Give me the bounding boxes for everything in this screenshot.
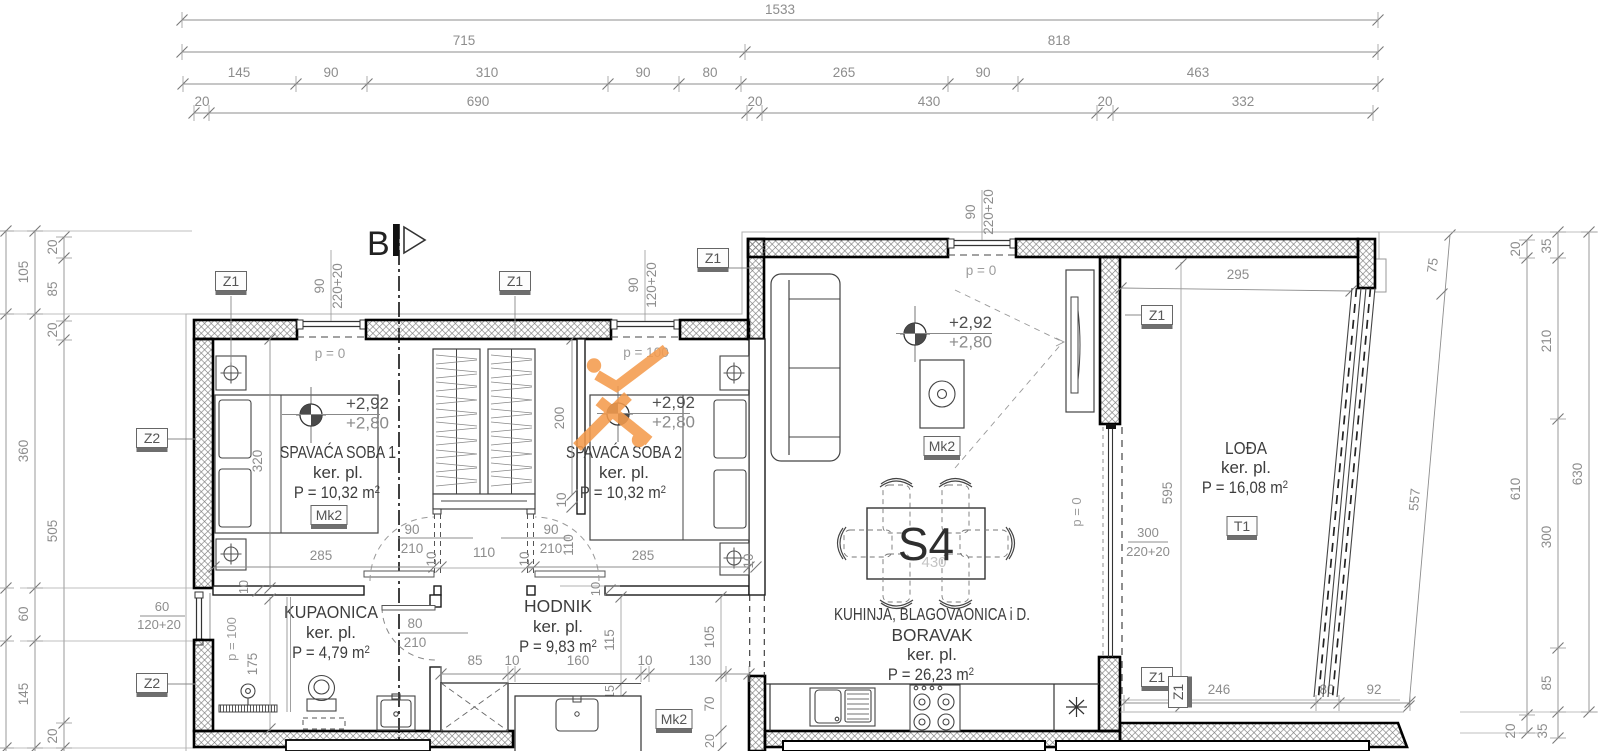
svg-text:220+20: 220+20 (330, 263, 345, 308)
svg-text:110: 110 (561, 534, 576, 556)
svg-text:90: 90 (404, 522, 419, 537)
svg-text:+2,92: +2,92 (346, 394, 389, 413)
svg-text:80: 80 (702, 65, 717, 80)
svg-text:145: 145 (16, 683, 31, 706)
svg-text:Mk2: Mk2 (316, 507, 343, 523)
svg-text:320: 320 (250, 450, 265, 473)
svg-text:145: 145 (228, 65, 251, 80)
svg-text:p = 0: p = 0 (1069, 497, 1084, 526)
svg-text:332: 332 (1232, 94, 1255, 109)
svg-text:210: 210 (401, 541, 424, 556)
svg-text:85: 85 (467, 653, 482, 668)
svg-text:130: 130 (689, 653, 712, 668)
svg-text:360: 360 (16, 440, 31, 463)
svg-text:Z1: Z1 (1170, 684, 1186, 701)
svg-text:505: 505 (45, 520, 60, 543)
svg-text:220+20: 220+20 (1126, 544, 1170, 559)
svg-text:210: 210 (1539, 330, 1554, 353)
svg-text:10: 10 (637, 653, 652, 668)
svg-text:610: 610 (1508, 478, 1523, 501)
svg-text:160: 160 (567, 653, 590, 668)
svg-text:ker. pl.: ker. pl. (533, 617, 583, 636)
svg-text:60: 60 (16, 606, 31, 621)
svg-text:Z1: Z1 (705, 250, 722, 266)
svg-text:S4: S4 (898, 518, 954, 570)
svg-text:265: 265 (833, 65, 856, 80)
svg-text:630: 630 (1570, 463, 1585, 486)
svg-text:75: 75 (1424, 257, 1441, 274)
svg-text:SPAVAĆA SOBA 1: SPAVAĆA SOBA 1 (280, 441, 396, 462)
svg-text:Z1: Z1 (1149, 669, 1166, 685)
svg-text:P = 10,32 m2: P = 10,32 m2 (580, 484, 666, 502)
svg-text:20: 20 (45, 728, 60, 743)
svg-text:285: 285 (632, 548, 655, 563)
svg-text:595: 595 (1160, 482, 1175, 505)
svg-text:85: 85 (45, 281, 60, 296)
svg-text:285: 285 (310, 548, 333, 563)
svg-text:P = 4,79 m2: P = 4,79 m2 (292, 644, 370, 662)
svg-text:P = 16,08 m2: P = 16,08 m2 (1202, 479, 1288, 497)
svg-text:P = 26,23 m2: P = 26,23 m2 (888, 666, 974, 684)
svg-text:20: 20 (45, 239, 60, 254)
svg-text:105: 105 (16, 261, 31, 284)
svg-text:Z1: Z1 (507, 273, 524, 289)
svg-text:90: 90 (975, 65, 990, 80)
svg-text:Mk2: Mk2 (661, 711, 688, 727)
svg-text:120+20: 120+20 (137, 617, 181, 632)
svg-text:B: B (367, 225, 390, 263)
svg-text:KUPAONICA: KUPAONICA (284, 602, 378, 622)
svg-text:ker. pl.: ker. pl. (1221, 458, 1271, 477)
svg-text:HODNIK: HODNIK (524, 596, 592, 616)
svg-text:+2,80: +2,80 (652, 413, 695, 432)
svg-text:92: 92 (1366, 682, 1381, 697)
svg-text:Mk2: Mk2 (929, 438, 956, 454)
svg-text:Z2: Z2 (144, 675, 161, 691)
svg-text:1533: 1533 (765, 2, 795, 17)
svg-text:KUHINJA, BLAGOVAONICA i D.: KUHINJA, BLAGOVAONICA i D. (834, 604, 1030, 624)
svg-text:818: 818 (1048, 33, 1071, 48)
svg-text:90: 90 (635, 65, 650, 80)
svg-text:90: 90 (323, 65, 338, 80)
svg-text:246: 246 (1208, 682, 1231, 697)
svg-text:20: 20 (1503, 723, 1518, 738)
svg-text:90: 90 (626, 277, 641, 292)
svg-text:10: 10 (504, 653, 519, 668)
svg-text:T1: T1 (1234, 518, 1251, 534)
svg-text:80: 80 (407, 616, 422, 631)
svg-text:p = 0: p = 0 (966, 263, 996, 278)
svg-text:430: 430 (918, 94, 941, 109)
svg-text:90: 90 (312, 278, 327, 293)
svg-text:20: 20 (194, 94, 209, 109)
svg-text:90: 90 (963, 204, 978, 219)
svg-text:+2,92: +2,92 (949, 313, 992, 332)
svg-text:20: 20 (1508, 241, 1523, 256)
svg-text:220+20: 220+20 (981, 189, 996, 234)
svg-text:20: 20 (1097, 94, 1112, 109)
svg-text:463: 463 (1187, 65, 1210, 80)
svg-text:715: 715 (453, 33, 476, 48)
svg-text:10: 10 (237, 580, 251, 594)
svg-text:20: 20 (747, 94, 762, 109)
svg-text:200: 200 (552, 407, 567, 430)
svg-text:10: 10 (424, 551, 439, 566)
svg-text:p = 0: p = 0 (315, 346, 345, 361)
svg-text:Z2: Z2 (144, 430, 161, 446)
svg-text:115: 115 (602, 629, 617, 651)
svg-text:310: 310 (476, 65, 499, 80)
svg-text:110: 110 (473, 544, 496, 560)
svg-text:90: 90 (543, 522, 558, 537)
svg-text:20: 20 (45, 322, 60, 337)
svg-text:Z1: Z1 (1149, 307, 1166, 323)
svg-text:ker. pl.: ker. pl. (313, 463, 363, 482)
svg-text:210: 210 (404, 635, 427, 650)
svg-text:70: 70 (702, 696, 717, 711)
svg-text:ker. pl.: ker. pl. (306, 623, 356, 642)
svg-text:10: 10 (588, 582, 603, 596)
svg-text:300: 300 (1137, 525, 1159, 540)
svg-text:210: 210 (540, 541, 563, 556)
svg-text:P = 10,32 m2: P = 10,32 m2 (294, 484, 380, 502)
svg-text:557: 557 (1406, 488, 1423, 512)
svg-text:LOĐA: LOĐA (1225, 438, 1267, 458)
svg-text:Z1: Z1 (223, 273, 240, 289)
svg-text:10: 10 (517, 551, 532, 566)
svg-text:+2,92: +2,92 (652, 393, 695, 412)
svg-text:35: 35 (1535, 723, 1550, 738)
svg-text:10: 10 (741, 553, 756, 568)
svg-text:295: 295 (1227, 267, 1250, 282)
svg-text:300: 300 (1539, 526, 1554, 549)
svg-text:ker. pl.: ker. pl. (599, 463, 649, 482)
svg-text:p = 100: p = 100 (224, 617, 239, 661)
svg-text:175: 175 (245, 653, 260, 676)
svg-text:10: 10 (554, 492, 569, 507)
svg-text:60: 60 (155, 599, 169, 614)
svg-text:+2,80: +2,80 (346, 414, 389, 433)
svg-text:85: 85 (1539, 675, 1554, 690)
svg-text:20: 20 (703, 734, 717, 748)
svg-text:120+20: 120+20 (644, 262, 659, 307)
svg-text:35: 35 (1539, 238, 1554, 253)
svg-text:BORAVAK: BORAVAK (892, 625, 973, 645)
svg-text:ker. pl.: ker. pl. (907, 645, 957, 664)
svg-text:105: 105 (702, 626, 717, 649)
svg-text:690: 690 (467, 94, 490, 109)
svg-text:+2,80: +2,80 (949, 333, 992, 352)
